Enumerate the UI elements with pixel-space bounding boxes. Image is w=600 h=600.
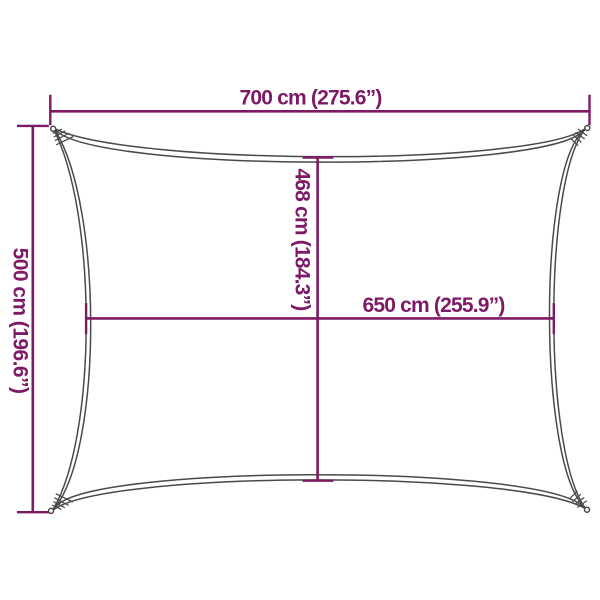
svg-text:700 cm (275.6”): 700 cm (275.6”) [239, 86, 381, 109]
svg-text:500 cm (196.6”): 500 cm (196.6”) [8, 248, 31, 394]
svg-text:468 cm (184.3”): 468 cm (184.3”) [290, 168, 313, 310]
svg-text:650 cm (255.9”): 650 cm (255.9”) [362, 294, 504, 317]
